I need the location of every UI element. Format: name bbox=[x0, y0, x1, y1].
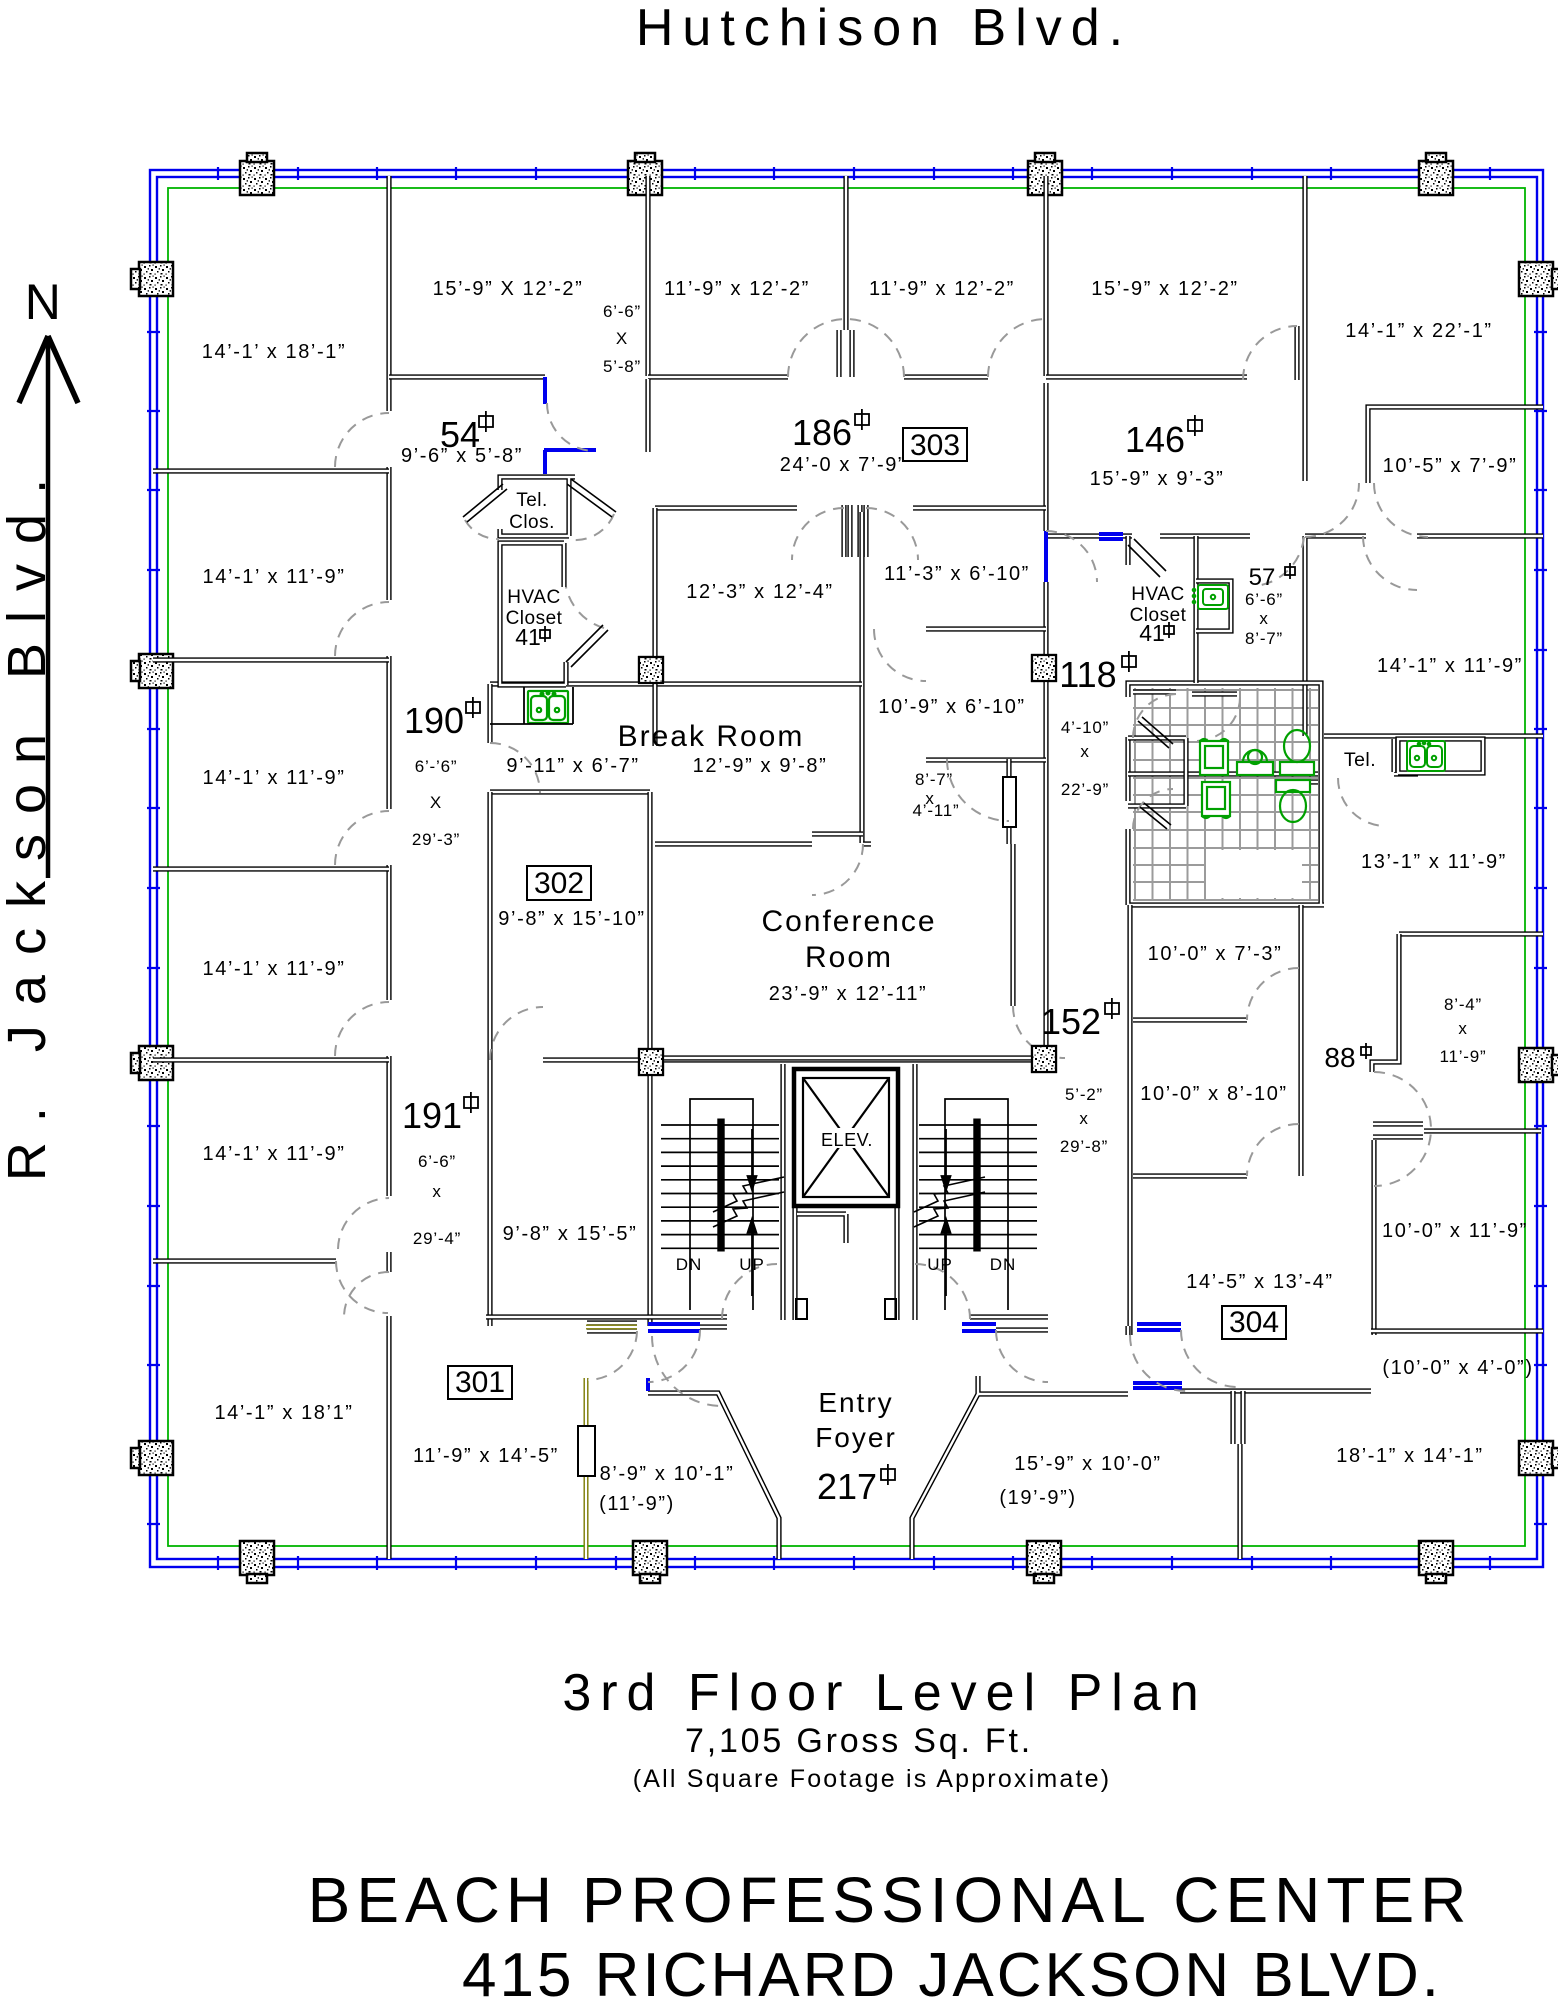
svg-text:190: 190 bbox=[404, 700, 464, 741]
svg-text:ELEV.: ELEV. bbox=[821, 1130, 873, 1150]
svg-text:(10’-0” x 4’-0”): (10’-0” x 4’-0”) bbox=[1382, 1357, 1533, 1379]
svg-text:Conference: Conference bbox=[761, 905, 936, 938]
svg-text:9’-8” x 15’-10”: 9’-8” x 15’-10” bbox=[498, 908, 645, 930]
svg-text:HVAC: HVAC bbox=[1131, 584, 1184, 605]
svg-text:BEACH PROFESSIONAL CENTER: BEACH PROFESSIONAL CENTER bbox=[308, 1864, 1473, 1936]
svg-text:9’-8” x 15’-5”: 9’-8” x 15’-5” bbox=[503, 1223, 638, 1245]
svg-text:14’-1’ x 11’-9”: 14’-1’ x 11’-9” bbox=[203, 958, 346, 980]
svg-text:x: x bbox=[432, 1182, 441, 1201]
svg-text:12’-3” x 12’-4”: 12’-3” x 12’-4” bbox=[686, 581, 833, 603]
svg-text:11’-9” x 12’-2”: 11’-9” x 12’-2” bbox=[664, 278, 810, 300]
svg-text:152: 152 bbox=[1041, 1001, 1101, 1042]
svg-text:Clos.: Clos. bbox=[509, 512, 555, 533]
svg-text:UP: UP bbox=[739, 1255, 765, 1274]
svg-text:N: N bbox=[25, 274, 62, 330]
svg-text:302: 302 bbox=[534, 867, 584, 900]
svg-text:15’-9” x 10’-0”: 15’-9” x 10’-0” bbox=[1014, 1453, 1161, 1475]
svg-text:146: 146 bbox=[1125, 419, 1185, 460]
svg-text:15’-9” x 12’-2”: 15’-9” x 12’-2” bbox=[1091, 278, 1238, 300]
svg-text:29’-3”: 29’-3” bbox=[412, 830, 460, 849]
svg-text:88: 88 bbox=[1324, 1042, 1355, 1073]
svg-text:301: 301 bbox=[455, 1366, 505, 1399]
svg-text:3rd Floor Level Plan: 3rd Floor Level Plan bbox=[562, 1664, 1207, 1722]
svg-text:14’-1’ x 11’-9”: 14’-1’ x 11’-9” bbox=[203, 566, 346, 588]
svg-text:Foyer: Foyer bbox=[815, 1422, 897, 1453]
svg-text:10’-0” x 8’-10”: 10’-0” x 8’-10” bbox=[1140, 1083, 1287, 1105]
svg-text:14’-1” x 11’-9”: 14’-1” x 11’-9” bbox=[1377, 655, 1523, 677]
svg-text:13’-1” x 11’-9”: 13’-1” x 11’-9” bbox=[1361, 851, 1507, 873]
svg-text:15’-9” X 12’-2”: 15’-9” X 12’-2” bbox=[433, 278, 584, 300]
svg-text:DN: DN bbox=[990, 1255, 1017, 1274]
svg-text:22’-9”: 22’-9” bbox=[1061, 780, 1109, 799]
svg-text:Room: Room bbox=[805, 941, 893, 974]
svg-text:11’-3” x 6’-10”: 11’-3” x 6’-10” bbox=[884, 563, 1030, 585]
svg-text:303: 303 bbox=[910, 429, 960, 462]
svg-text:8’-9” x 10’-1”: 8’-9” x 10’-1” bbox=[600, 1463, 735, 1485]
svg-text:(19’-9”): (19’-9”) bbox=[999, 1487, 1076, 1509]
svg-text:Entry: Entry bbox=[818, 1387, 893, 1418]
svg-text:29’-4”: 29’-4” bbox=[413, 1229, 461, 1248]
svg-text:9’-11” x 6’-7”: 9’-11” x 6’-7” bbox=[506, 755, 639, 777]
svg-text:8’-4”: 8’-4” bbox=[1444, 995, 1482, 1014]
svg-text:14’-1” x 22’-1”: 14’-1” x 22’-1” bbox=[1345, 320, 1492, 342]
svg-text:118: 118 bbox=[1059, 654, 1116, 695]
svg-text:X: X bbox=[616, 329, 628, 348]
svg-text:9’-6” x 5’-8”: 9’-6” x 5’-8” bbox=[401, 445, 523, 467]
svg-text:18’-1” x 14’-1”: 18’-1” x 14’-1” bbox=[1336, 1445, 1483, 1467]
svg-text:4’-11”: 4’-11” bbox=[912, 801, 959, 820]
svg-text:6’-6”: 6’-6” bbox=[603, 302, 641, 321]
svg-text:x: x bbox=[1458, 1019, 1467, 1038]
svg-text:14’-1’ x 18’-1”: 14’-1’ x 18’-1” bbox=[202, 341, 346, 363]
svg-text:10’-9” x 6’-10”: 10’-9” x 6’-10” bbox=[878, 696, 1025, 718]
svg-text:191: 191 bbox=[402, 1095, 462, 1136]
svg-text:x: x bbox=[1080, 742, 1089, 761]
svg-text:8’-7”: 8’-7” bbox=[1245, 629, 1283, 648]
svg-text:Tel.: Tel. bbox=[1344, 749, 1376, 771]
svg-text:Hutchison Blvd.: Hutchison Blvd. bbox=[636, 0, 1132, 57]
svg-text:14’-1” x 18’1”: 14’-1” x 18’1” bbox=[214, 1402, 353, 1424]
svg-text:11’-9” x 12’-2”: 11’-9” x 12’-2” bbox=[869, 278, 1015, 300]
svg-text:DN: DN bbox=[676, 1255, 703, 1274]
svg-text:12’-9” x 9’-8”: 12’-9” x 9’-8” bbox=[693, 755, 828, 777]
svg-text:x: x bbox=[1259, 609, 1268, 628]
svg-text:15’-9” x 9’-3”: 15’-9” x 9’-3” bbox=[1090, 468, 1225, 490]
svg-text:X: X bbox=[430, 793, 442, 812]
svg-text:7,105 Gross Sq. Ft.: 7,105 Gross Sq. Ft. bbox=[685, 1722, 1033, 1760]
svg-text:24’-0 x 7’-9”: 24’-0 x 7’-9” bbox=[780, 454, 906, 476]
svg-text:(All Square Footage is App: (All Square Footage is Approximate) bbox=[633, 1765, 1112, 1793]
svg-text:57: 57 bbox=[1249, 564, 1276, 591]
svg-text:41: 41 bbox=[515, 624, 541, 650]
svg-text:14’-1’ x 11’-9”: 14’-1’ x 11’-9” bbox=[203, 767, 346, 789]
svg-text:6’-’6”: 6’-’6” bbox=[415, 757, 458, 776]
svg-text:217: 217 bbox=[817, 1466, 877, 1507]
svg-text:6’-6”: 6’-6” bbox=[418, 1152, 456, 1171]
svg-text:6’-6”: 6’-6” bbox=[1245, 590, 1283, 609]
svg-text:4’-10”: 4’-10” bbox=[1061, 718, 1109, 737]
svg-text:10’-5” x 7’-9”: 10’-5” x 7’-9” bbox=[1383, 455, 1518, 477]
svg-text:(11’-9”): (11’-9”) bbox=[599, 1493, 675, 1515]
svg-text:UP: UP bbox=[927, 1255, 953, 1274]
svg-text:Break Room: Break Room bbox=[618, 720, 805, 753]
svg-text:29’-8”: 29’-8” bbox=[1060, 1137, 1108, 1156]
svg-text:10’-0” x 11’-9”: 10’-0” x 11’-9” bbox=[1382, 1220, 1528, 1242]
svg-text:8’-7”: 8’-7” bbox=[915, 770, 953, 789]
svg-text:14’-5” x 13’-4”: 14’-5” x 13’-4” bbox=[1186, 1271, 1333, 1293]
svg-text:186: 186 bbox=[792, 412, 852, 453]
svg-text:14’-1’ x 11’-9”: 14’-1’ x 11’-9” bbox=[203, 1143, 346, 1165]
svg-text:11’-9” x 14’-5”: 11’-9” x 14’-5” bbox=[413, 1445, 559, 1467]
svg-text:415 RICHARD JACKSON BLVD.: 415 RICHARD JACKSON BLVD. bbox=[462, 1941, 1442, 2000]
svg-text:23’-9” x 12’-11”: 23’-9” x 12’-11” bbox=[769, 983, 928, 1005]
svg-text:41: 41 bbox=[1139, 620, 1165, 646]
svg-text:HVAC: HVAC bbox=[507, 587, 560, 608]
svg-text:Tel.: Tel. bbox=[516, 490, 548, 511]
svg-text:x: x bbox=[1079, 1109, 1088, 1128]
svg-text:11’-9”: 11’-9” bbox=[1439, 1047, 1486, 1066]
svg-text:10’-0” x 7’-3”: 10’-0” x 7’-3” bbox=[1148, 943, 1283, 965]
svg-text:5’-2”: 5’-2” bbox=[1065, 1085, 1103, 1104]
svg-text:304: 304 bbox=[1229, 1306, 1279, 1339]
svg-text:5’-8”: 5’-8” bbox=[603, 357, 641, 376]
